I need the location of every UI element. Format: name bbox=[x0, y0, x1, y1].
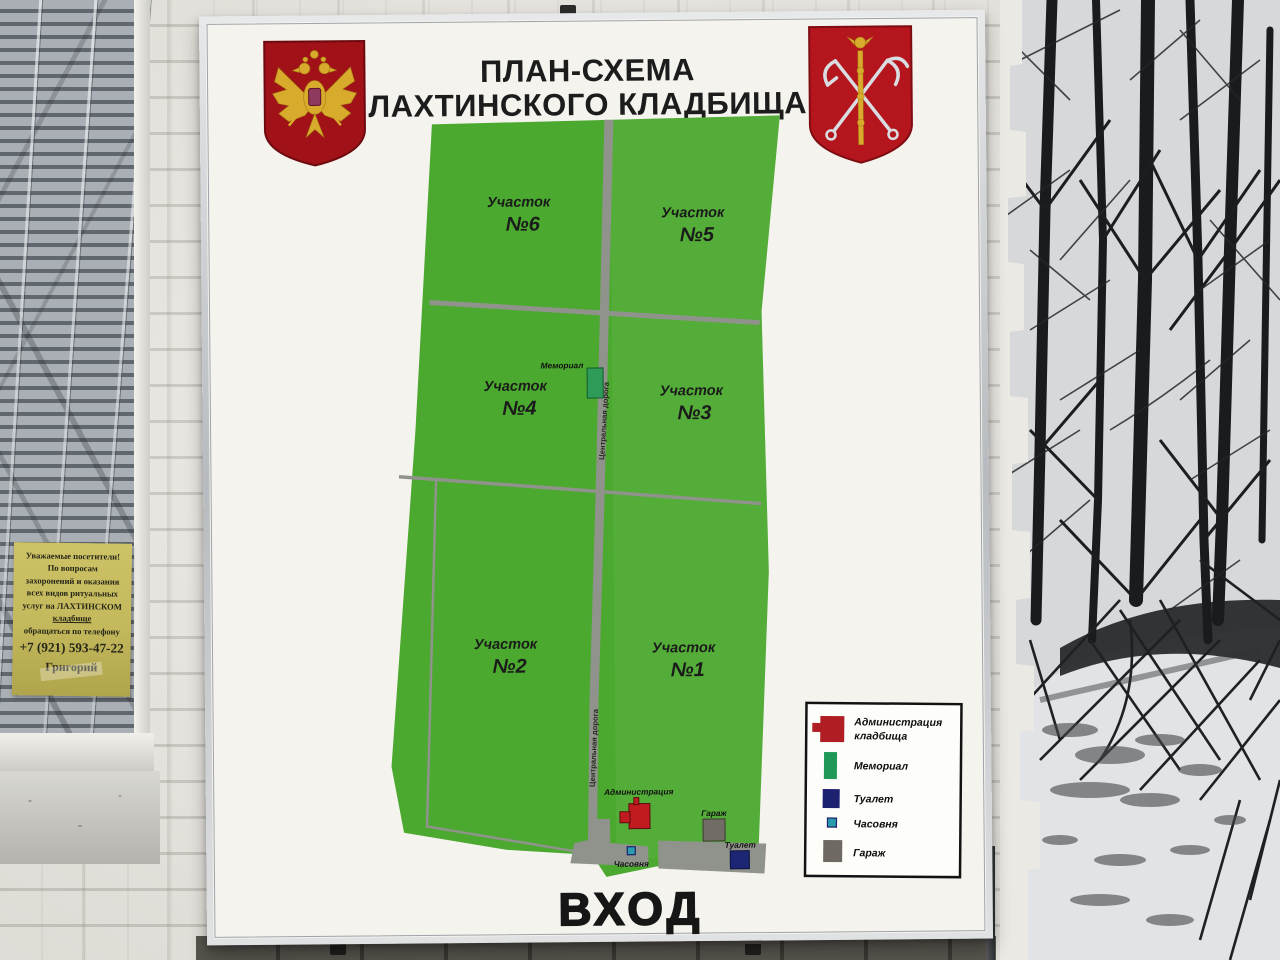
board-mount-tab bbox=[330, 944, 346, 955]
plan-board: ПЛАН-СХЕМА ЛАХТИНСКОГО КЛАДБИЩА bbox=[199, 10, 993, 946]
section-6-number: №6 bbox=[506, 213, 541, 235]
chapel-building bbox=[627, 847, 635, 855]
notice-line: Уважаемые посетители! bbox=[17, 549, 129, 563]
toilet-building bbox=[730, 851, 749, 869]
administration-annex bbox=[620, 812, 630, 823]
section-4-number: №4 bbox=[502, 398, 536, 420]
notice-phone: +7 (921) 593-47-22 bbox=[15, 639, 127, 657]
garage-building bbox=[703, 819, 725, 841]
section-2-number: №2 bbox=[493, 656, 527, 678]
administration-building bbox=[629, 804, 650, 829]
window-frame bbox=[134, 0, 150, 737]
board-mount-tab bbox=[745, 944, 761, 955]
legend-swatch-garage bbox=[823, 840, 842, 862]
board-title-line1: ПЛАН-СХЕМА bbox=[480, 52, 695, 89]
section-3-number: №3 bbox=[677, 402, 711, 424]
saint-petersburg-coat-of-arms bbox=[809, 26, 912, 163]
notice-line: обращаться по телефону bbox=[16, 624, 128, 638]
section-6-label: Участок bbox=[487, 194, 551, 211]
russia-coat-of-arms bbox=[264, 41, 365, 166]
section-3-label: Участок bbox=[660, 383, 724, 400]
notice-sign: Уважаемые посетители! По вопросам захоро… bbox=[12, 542, 132, 697]
administration-label: Администрация bbox=[603, 786, 674, 797]
legend-swatch-memorial bbox=[824, 752, 837, 779]
section-4-label: Участок bbox=[483, 378, 547, 395]
outdoor-scene bbox=[1000, 0, 1280, 960]
cemetery-map: Участок №6 Участок №5 Участок №4 Участок… bbox=[386, 115, 787, 878]
legend-label-administration-2: кладбища bbox=[854, 730, 907, 742]
chapel-label: Часовня bbox=[614, 859, 649, 869]
legend-label-memorial: Мемориал bbox=[854, 760, 909, 772]
section-1-label: Участок bbox=[652, 640, 716, 657]
administration-chimney bbox=[634, 798, 639, 805]
legend-label-chapel: Часовня bbox=[853, 818, 898, 830]
window-ledge bbox=[0, 771, 160, 864]
window-sill bbox=[0, 733, 154, 773]
photo-of-cemetery-plan-sign: Уважаемые посетители! По вопросам захоро… bbox=[0, 0, 1280, 960]
garage-label: Гараж bbox=[701, 808, 727, 818]
section-5-number: №5 bbox=[680, 224, 715, 246]
legend-swatch-administration-annex bbox=[812, 723, 822, 732]
memorial-building bbox=[587, 368, 603, 398]
section-5-label: Участок bbox=[661, 205, 725, 222]
legend-swatch-administration bbox=[820, 716, 844, 742]
section-2-label: Участок bbox=[474, 637, 538, 654]
legend-swatch-toilet bbox=[823, 789, 840, 808]
memorial-label: Мемориал bbox=[541, 360, 585, 370]
legend-label-administration-1: Администрация bbox=[853, 716, 942, 729]
toilet-label: Туалет bbox=[725, 840, 757, 850]
entrance-label: ВХОД bbox=[558, 882, 703, 935]
legend-swatch-chapel bbox=[827, 818, 836, 827]
notice-line: услуг на ЛАХТИНСКОМ bbox=[16, 599, 128, 613]
section-1-number: №1 bbox=[671, 659, 705, 681]
legend: Администрация кладбища Мемориал Туалет Ч… bbox=[805, 703, 962, 877]
legend-label-toilet: Туалет bbox=[854, 793, 894, 805]
legend-label-garage: Гараж bbox=[853, 847, 887, 859]
